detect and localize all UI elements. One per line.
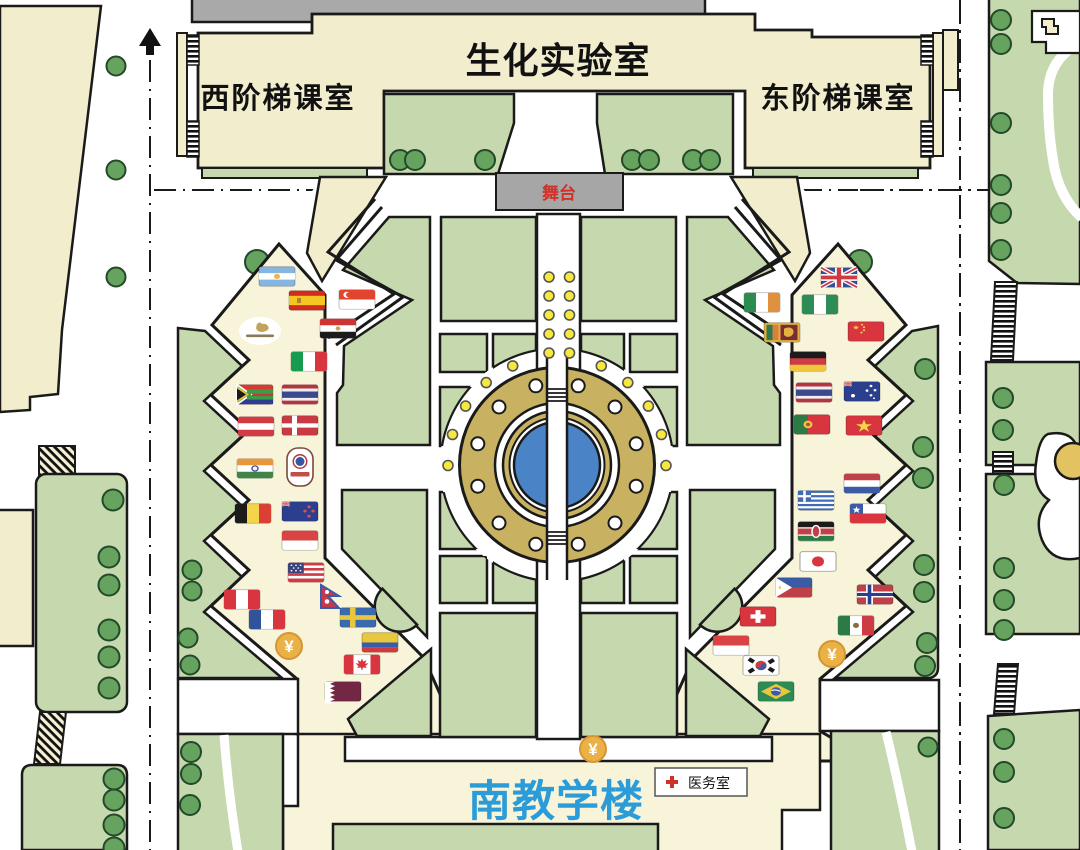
svg-text:¥: ¥ <box>588 740 598 759</box>
svg-text:¥: ¥ <box>284 637 294 656</box>
svg-text:南教学楼: 南教学楼 <box>468 778 644 826</box>
svg-text:西阶梯课室: 西阶梯课室 <box>200 81 355 115</box>
svg-text:生化实验室: 生化实验室 <box>465 40 650 81</box>
svg-text:医务室: 医务室 <box>688 775 730 791</box>
svg-text:东阶梯课室: 东阶梯课室 <box>760 81 915 115</box>
svg-text:舞台: 舞台 <box>542 183 576 203</box>
svg-text:¥: ¥ <box>827 645 837 664</box>
